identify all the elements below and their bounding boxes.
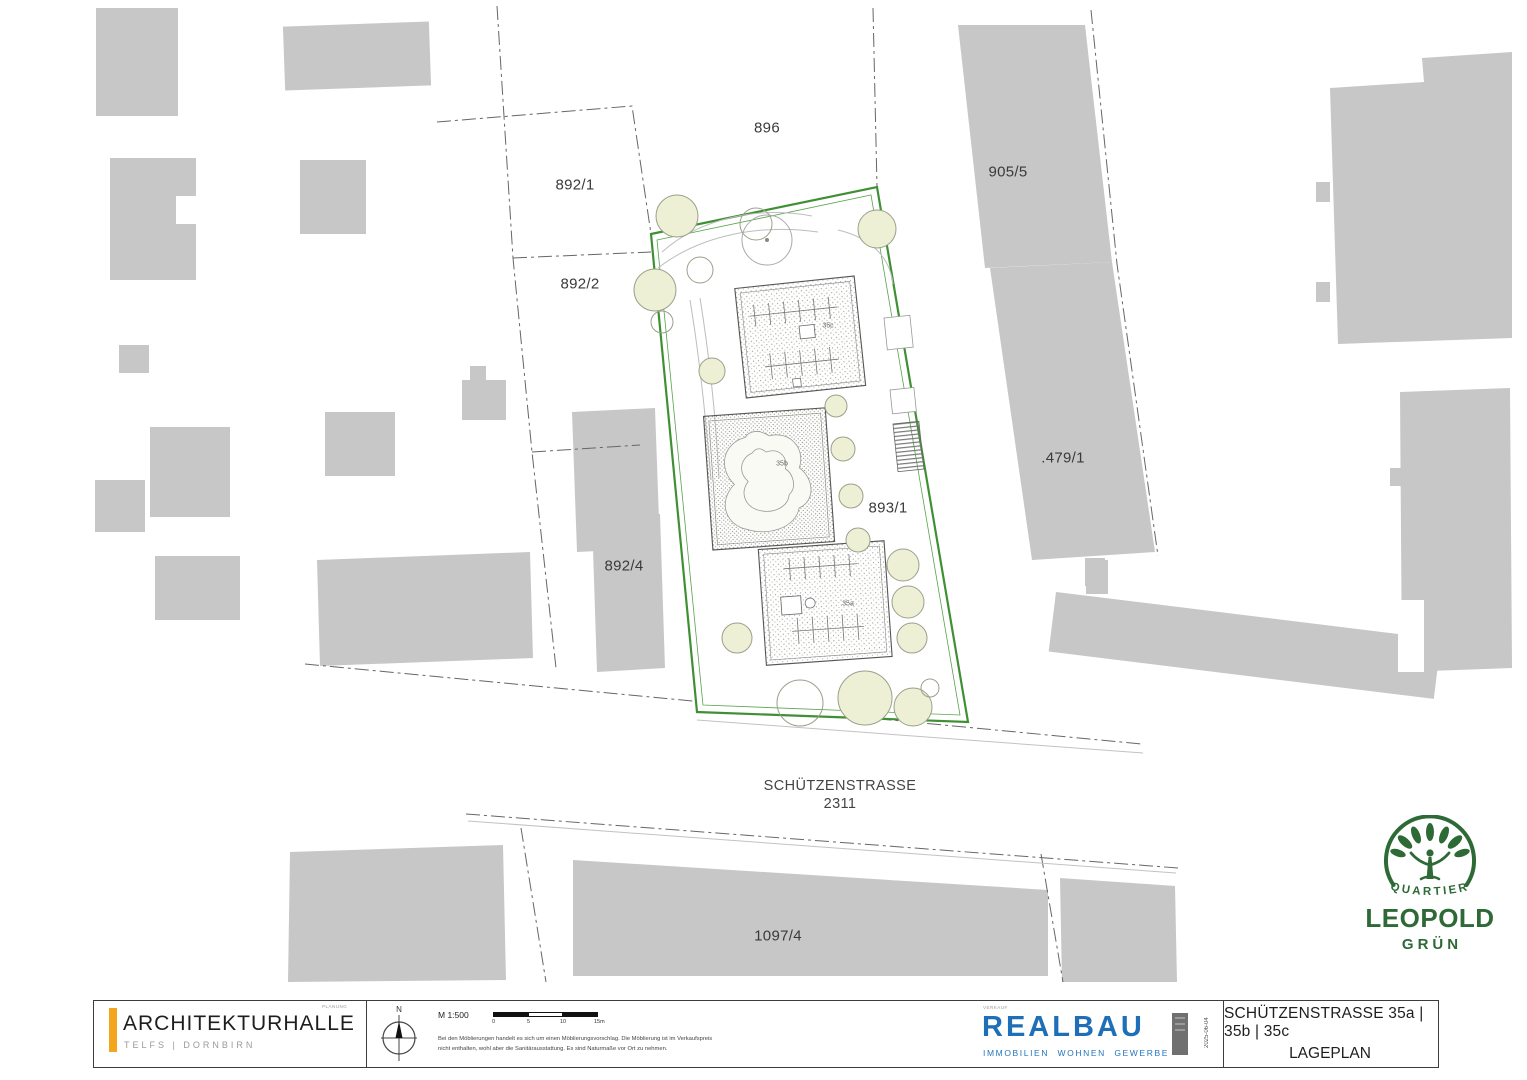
realbau-wordmark: REALBAU (982, 1011, 1145, 1044)
realbau-tag: VERKAUF (983, 1005, 1008, 1010)
divider (366, 1001, 367, 1067)
building-35c (735, 276, 866, 398)
building-label-35a: 35a (842, 601, 854, 608)
parcel-label-479-1: .479/1 (1041, 450, 1085, 467)
sheet-title-block: SCHÜTZENSTRASSE 35a | 35b | 35c LAGEPLAN (1224, 1001, 1436, 1067)
building-label-35c: 35c (822, 323, 833, 330)
logo-leopold-text: LEOPOLD (1365, 903, 1494, 933)
parcel-label-896: 896 (754, 120, 780, 137)
realbau-immobilien: IMMOBILIEN (983, 1048, 1049, 1058)
development-site (634, 187, 968, 726)
scale-bar (493, 1012, 598, 1017)
quartier-leopold-gruen-logo: QUARTIER LEOPOLD GRÜN (1360, 815, 1510, 975)
parcel-label-892-4: 892/4 (604, 558, 643, 575)
realbau-logo-block (1172, 1013, 1188, 1055)
title-block: ARCHITEKTURHALLE TELFS | DORNBIRN PLANUN… (93, 1000, 1439, 1068)
firm-name: ARCHITEKTURHALLE (123, 1012, 355, 1036)
parcel-label-1097-4: 1097/4 (754, 928, 802, 945)
scale-tick: 15m (594, 1019, 605, 1025)
street-number-label: 2311 (824, 796, 857, 812)
building-35a (758, 541, 892, 666)
scale-tick: 0 (492, 1019, 495, 1025)
sheet-subtitle-line: LAGEPLAN (1289, 1045, 1371, 1063)
street-lines (468, 720, 1176, 873)
tree-icon (1389, 823, 1470, 879)
street-name-label: SCHÜTZENSTRASSE (764, 778, 917, 794)
lageplan-sheet: 896 892/1 892/2 892/4 905/5 .479/1 893/1… (0, 0, 1527, 1080)
realbau-logo: VERKAUF REALBAU IMMOBILIEN WOHNEN GEWERB… (976, 1004, 1208, 1062)
firm-tag: PLANUNG (322, 1004, 347, 1009)
realbau-gewerbe: GEWERBE (1114, 1048, 1169, 1058)
firm-accent-bar (109, 1008, 117, 1052)
parcel-label-892-2: 892/2 (560, 276, 599, 293)
north-arrow-icon: N (378, 1003, 422, 1063)
disclaimer-line1: Bei den Möblierungen handelt es sich um … (438, 1034, 778, 1044)
disclaimer-line2: nicht enthalten, wohl aber die Sanitärau… (438, 1044, 778, 1054)
realbau-tagline: IMMOBILIEN WOHNEN GEWERBE (983, 1048, 1169, 1058)
scale-tick: 10 (560, 1019, 566, 1025)
parcel-label-892-1: 892/1 (555, 177, 594, 194)
logo-quartier-text: QUARTIER (1389, 881, 1470, 898)
building-label-35b: 35b (776, 461, 788, 468)
realbau-wohnen: WOHNEN (1058, 1048, 1106, 1058)
sheet-title-line: SCHÜTZENSTRASSE 35a | 35b | 35c (1224, 1005, 1436, 1041)
scale-label: M 1:500 (438, 1010, 469, 1020)
scale-tick: 5 (527, 1019, 530, 1025)
parcel-label-905-5: 905/5 (988, 164, 1027, 181)
plot-date: 2025-06-04 (1204, 1004, 1220, 1062)
disclaimer-text: Bei den Möblierungen handelt es sich um … (438, 1034, 778, 1054)
building-35b (704, 408, 835, 550)
stairs-hatch (893, 421, 924, 471)
firm-locations: TELFS | DORNBIRN (124, 1040, 255, 1050)
parcel-label-893-1: 893/1 (868, 500, 907, 517)
north-label: N (396, 1005, 402, 1014)
site-plan-drawing (0, 0, 1527, 990)
svg-text:QUARTIER: QUARTIER (1389, 881, 1470, 898)
logo-gruen-text: GRÜN (1402, 936, 1462, 953)
